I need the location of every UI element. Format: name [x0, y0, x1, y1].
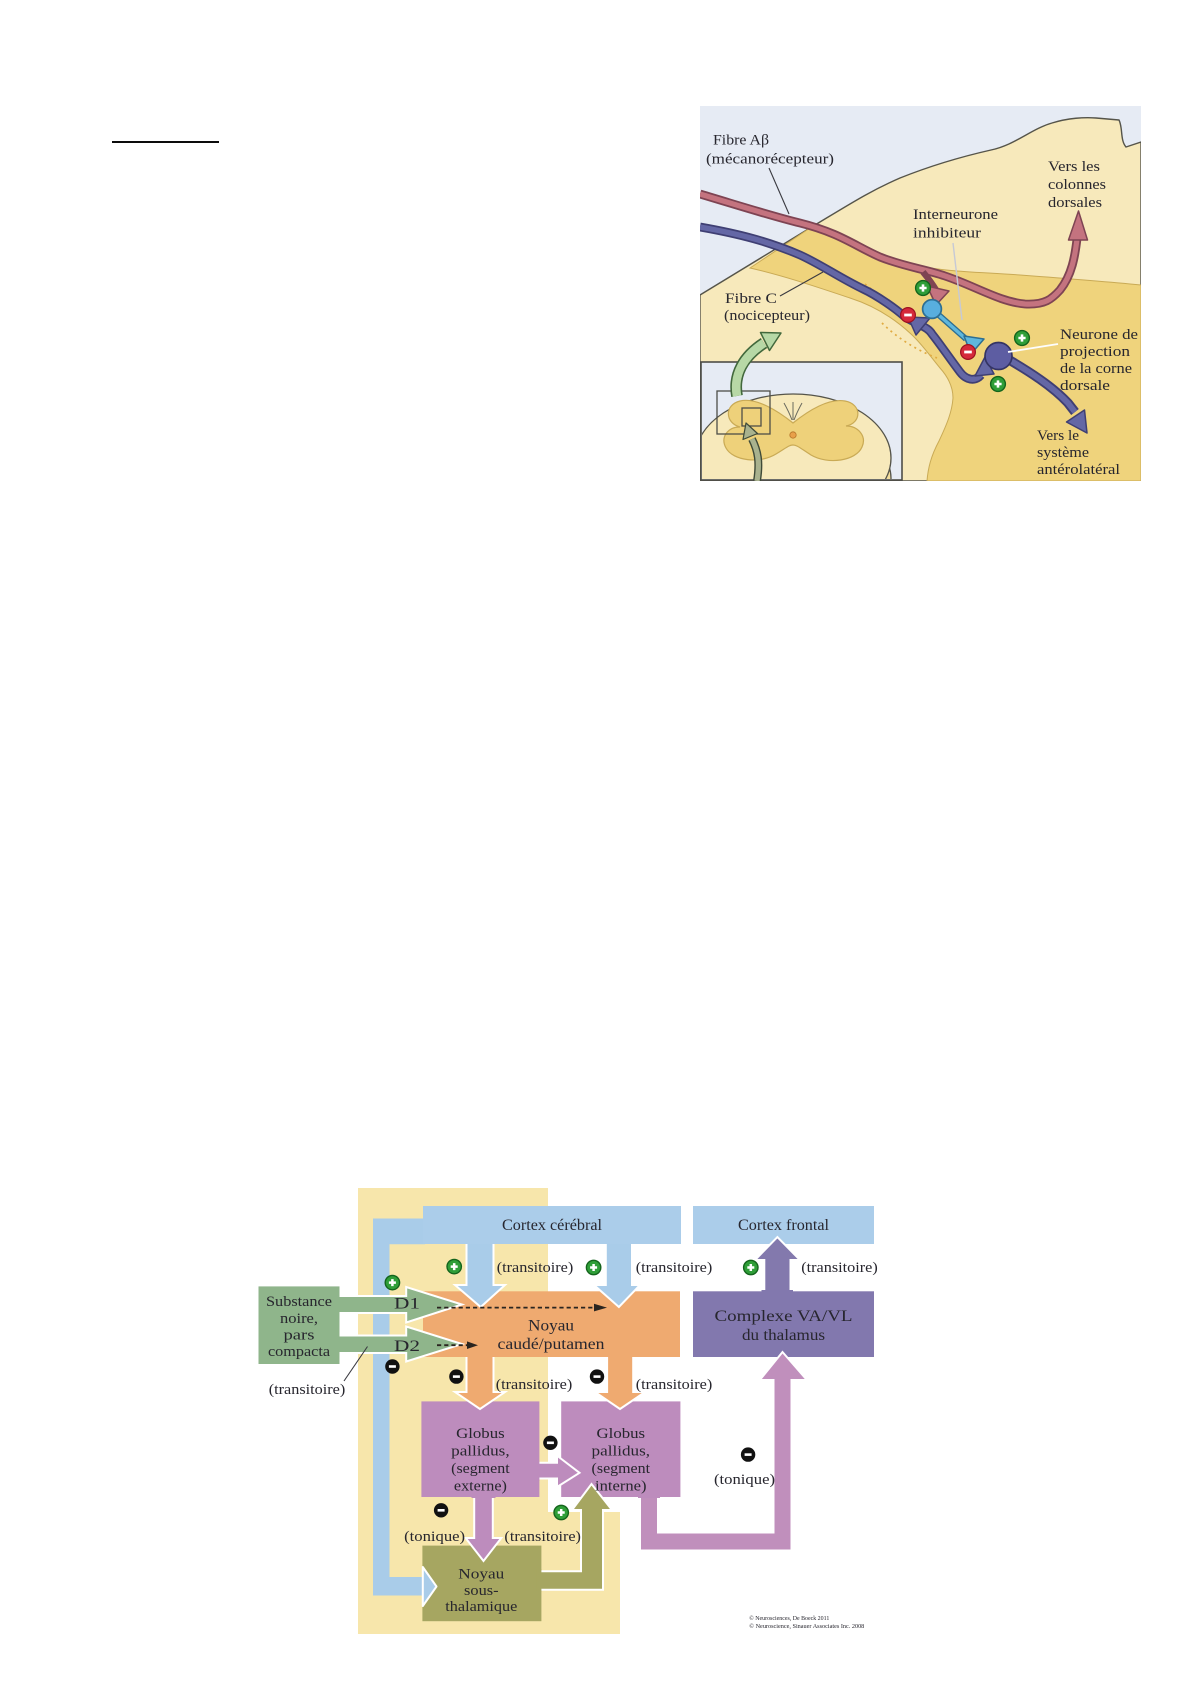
svg-text:Vers le: Vers le: [1037, 428, 1079, 444]
svg-text:sous-: sous-: [464, 1583, 499, 1599]
svg-text:Complexe VA/VL: Complexe VA/VL: [715, 1308, 853, 1325]
svg-text:Globus: Globus: [456, 1426, 505, 1442]
svg-text:(transitoire): (transitoire): [636, 1260, 713, 1276]
svg-text:© Neurosciences, De Boeck 2011: © Neurosciences, De Boeck 2011: [749, 1615, 829, 1622]
svg-text:Substance: Substance: [266, 1294, 332, 1310]
svg-text:projection: projection: [1060, 344, 1131, 360]
svg-text:pallidus,: pallidus,: [592, 1444, 651, 1460]
svg-text:inhibiteur: inhibiteur: [913, 226, 981, 242]
svg-text:de la corne: de la corne: [1060, 361, 1132, 377]
svg-text:dorsale: dorsale: [1060, 378, 1110, 394]
svg-text:(mécanorécepteur): (mécanorécepteur): [706, 152, 834, 168]
svg-text:(segment: (segment: [592, 1461, 651, 1477]
svg-text:Globus: Globus: [597, 1426, 646, 1442]
svg-text:(transitoire): (transitoire): [497, 1260, 574, 1276]
svg-text:externe): externe): [454, 1479, 507, 1495]
svg-text:pallidus,: pallidus,: [451, 1444, 510, 1460]
svg-text:colonnes: colonnes: [1048, 177, 1106, 193]
svg-text:Interneurone: Interneurone: [913, 207, 998, 223]
svg-text:interne): interne): [595, 1479, 647, 1495]
svg-text:thalamique: thalamique: [445, 1599, 517, 1615]
svg-text:(tonique): (tonique): [714, 1472, 775, 1488]
svg-text:Vers les: Vers les: [1048, 159, 1100, 175]
svg-text:Fibre C: Fibre C: [725, 291, 777, 307]
svg-text:Fibre Aβ: Fibre Aβ: [713, 133, 769, 149]
svg-text:pars: pars: [284, 1328, 315, 1344]
svg-text:caudé/putamen: caudé/putamen: [498, 1336, 605, 1353]
svg-text:Noyau: Noyau: [458, 1566, 504, 1582]
svg-text:Noyau: Noyau: [528, 1318, 574, 1335]
svg-text:(transitoire): (transitoire): [269, 1382, 346, 1398]
svg-text:(segment: (segment: [451, 1461, 510, 1477]
svg-text:Cortex cérébral: Cortex cérébral: [502, 1217, 603, 1234]
svg-text:dorsales: dorsales: [1048, 195, 1102, 211]
svg-text:D2: D2: [394, 1338, 420, 1355]
svg-text:© Neuroscience, Sinauer Associ: © Neuroscience, Sinauer Associates Inc. …: [749, 1623, 864, 1630]
svg-text:(transitoire): (transitoire): [801, 1260, 878, 1276]
svg-text:(transitoire): (transitoire): [496, 1377, 573, 1393]
svg-text:(tonique): (tonique): [404, 1529, 465, 1545]
svg-text:système: système: [1037, 445, 1089, 461]
svg-text:(transitoire): (transitoire): [636, 1377, 713, 1393]
svg-text:antérolatéral: antérolatéral: [1037, 462, 1120, 478]
svg-text:compacta: compacta: [268, 1344, 330, 1360]
svg-text:D1: D1: [394, 1296, 420, 1313]
svg-text:Neurone de: Neurone de: [1060, 327, 1138, 343]
svg-text:(nocicepteur): (nocicepteur): [724, 308, 810, 324]
svg-text:noire,: noire,: [280, 1311, 318, 1327]
svg-text:Cortex frontal: Cortex frontal: [738, 1217, 830, 1234]
svg-text:(transitoire): (transitoire): [504, 1529, 581, 1545]
svg-text:du thalamus: du thalamus: [742, 1327, 825, 1344]
